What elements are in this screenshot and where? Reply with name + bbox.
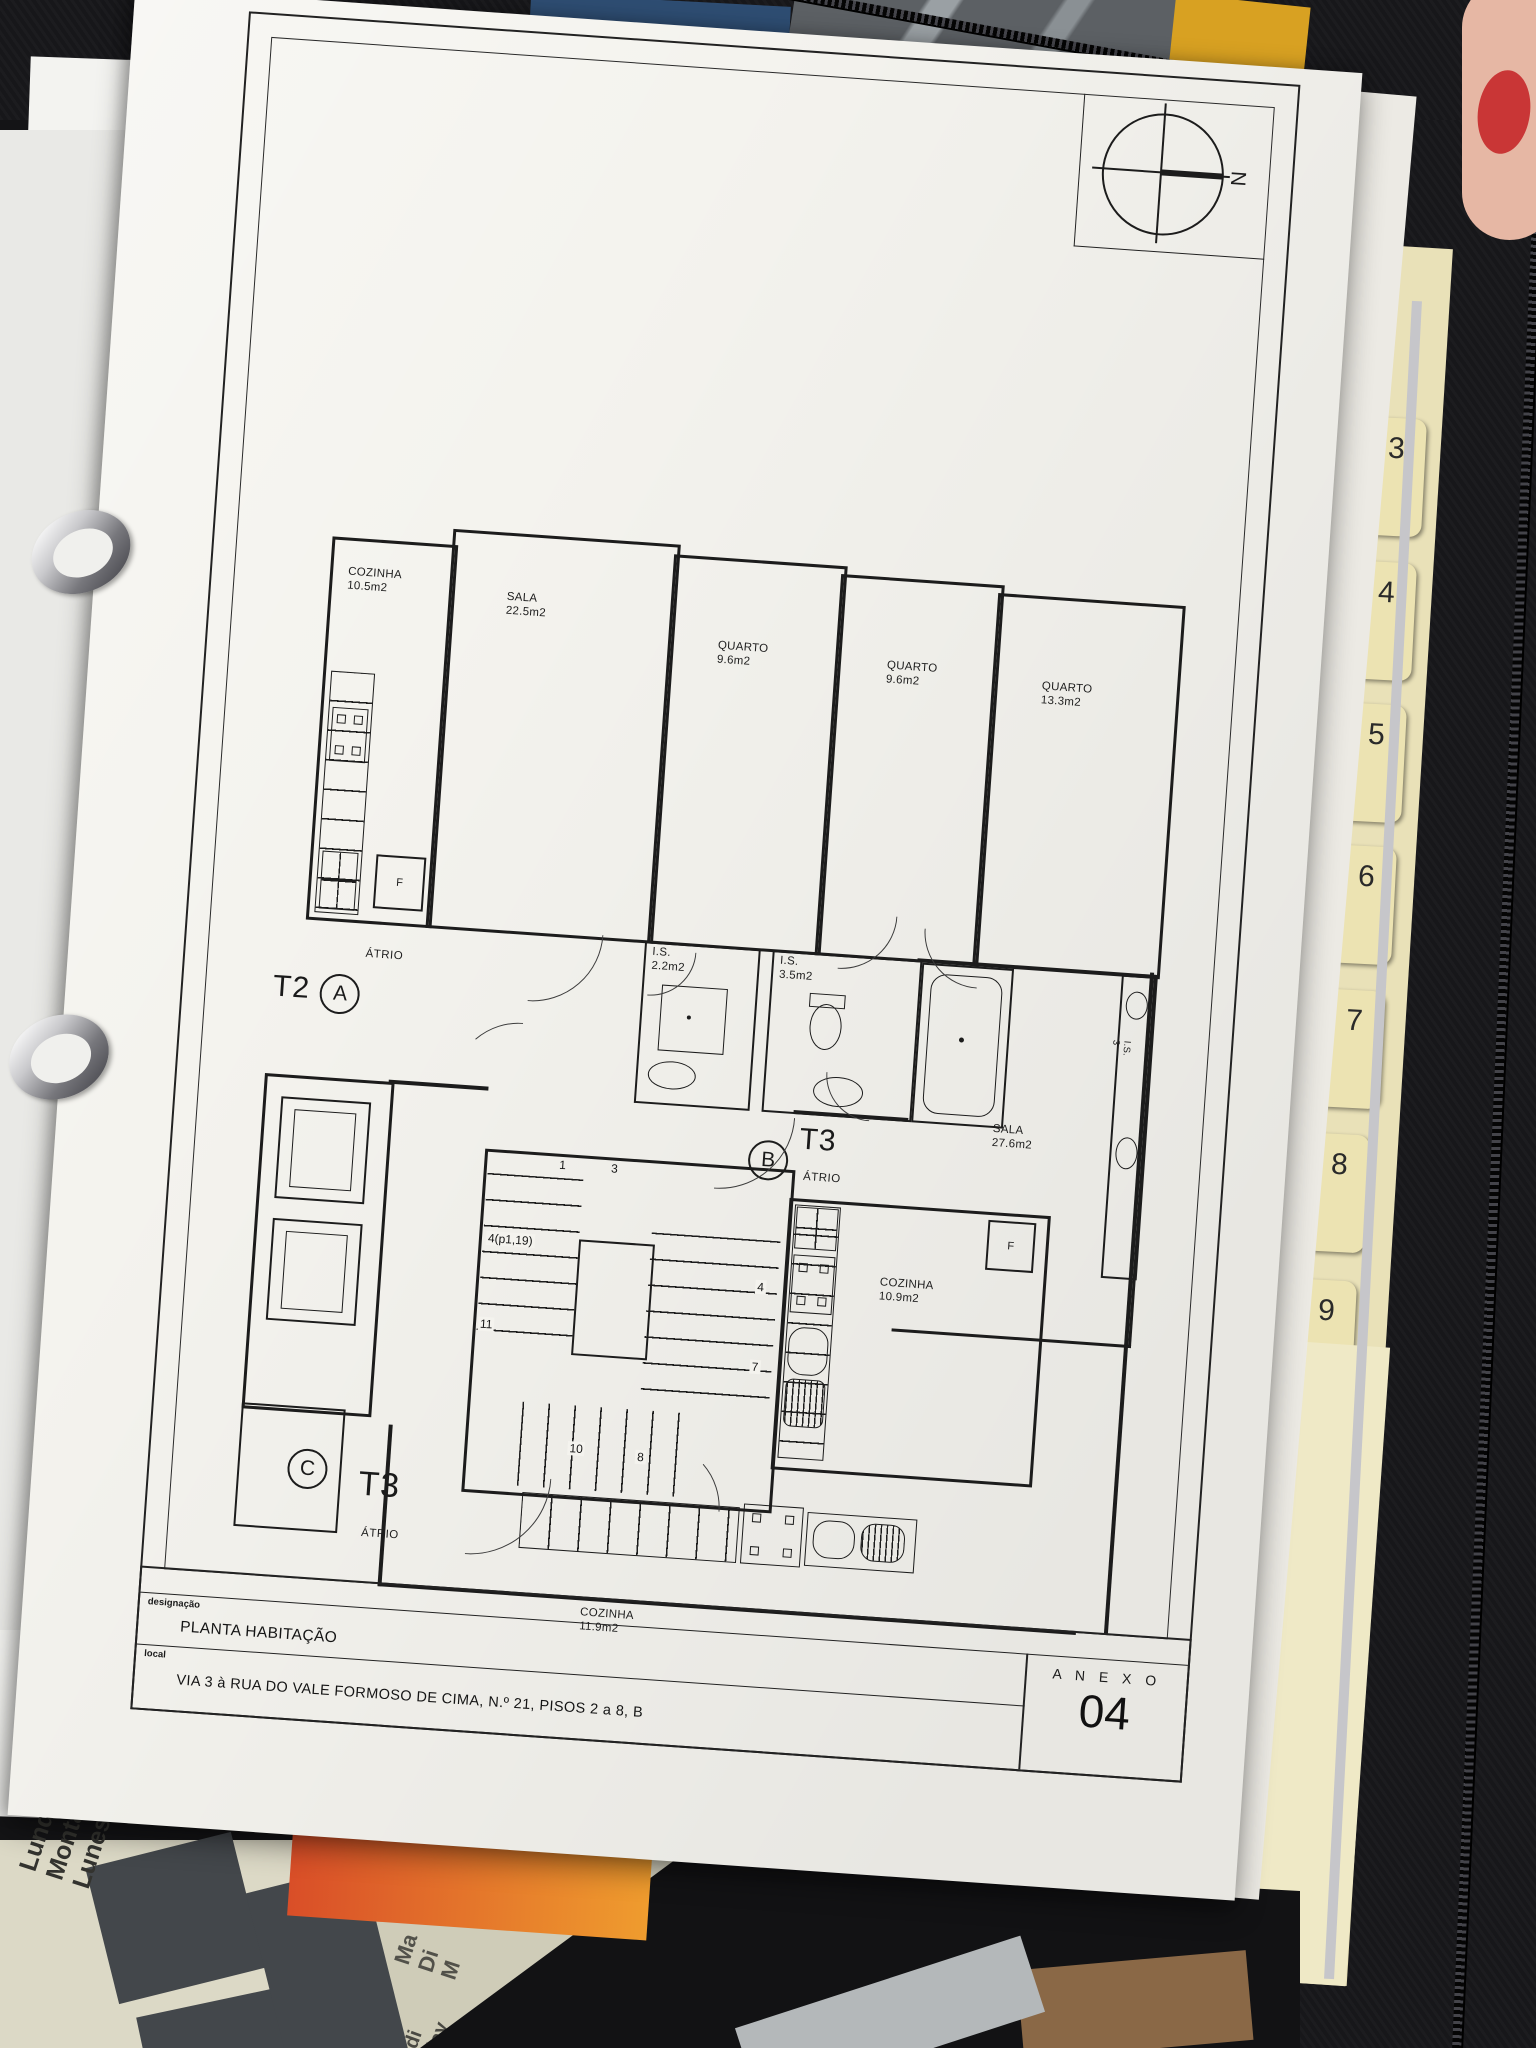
photo-of-floor-plan-in-binder: 3 4 5 6 7 8 9 0 2 Lundi Montag Lunes Ma … [0,0,1536,2048]
designacao-label: designação [147,1596,200,1611]
room-quarto-1 [647,554,848,955]
room-sala-t2 [425,529,680,944]
stair-num-3: 3 [611,1161,619,1175]
sheet-frame: N COZINHA10.5m2 [130,11,1300,1782]
unit-type-c: T3 [357,1465,401,1507]
stair-num-11: 11 [478,1317,495,1332]
room-quarto-3 [972,593,1186,979]
stove-t3b [790,1254,836,1315]
stair-num-8: 8 [635,1450,647,1465]
anexo-box: A N E X O 04 [1018,1654,1188,1781]
designacao-value: PLANTA HABITAÇÃO [179,1618,337,1647]
stair-num-4: 4 [755,1280,767,1295]
unit-label-a: T2 A [271,969,361,1015]
stair-landing [571,1239,655,1360]
label-cozinha-t3b: COZINHA10.9m2 [878,1276,934,1307]
sink-grid-t2 [319,850,359,910]
stair-num-10: 10 [567,1441,585,1456]
stair-num-1: 1 [559,1158,567,1172]
label-quarto-2: QUARTO9.6m2 [885,659,937,690]
label-sala-t3b: SALA27.6m2 [991,1123,1033,1153]
shower-tray [658,985,728,1055]
local-label: local [144,1648,166,1660]
anexo-number: 04 [1023,1680,1186,1745]
label-is-edge: I.S.3 [1109,1040,1133,1057]
label-sala-t2: SALA22.5m2 [505,591,547,621]
floor-plan: COZINHA10.5m2 SALA22.5m2 QUARTO9.6m2 QUA… [227,518,1191,1672]
stove-t2 [329,707,369,763]
fridge-t3b: F [985,1220,1036,1273]
stove-t3c [740,1503,804,1567]
north-indicator: N [1074,94,1275,260]
label-atrio-b: ÁTRIO [803,1171,841,1186]
kitchen-grid-t3b [794,1206,839,1251]
local-value: VIA 3 à RUA DO VALE FORMOSO DE CIMA, N.º… [176,1672,644,1721]
label-quarto-3: QUARTO13.3m2 [1040,680,1092,711]
toilet-tank [809,993,846,1009]
sink-t3b-1 [786,1326,829,1377]
label-is-big: I.S.3.5m2 [779,955,814,985]
label-cozinha-t2: COZINHA10.5m2 [347,566,403,597]
elevator-2 [266,1218,363,1326]
unit-type-b: T3 [798,1123,837,1159]
stairs-right [640,1232,780,1409]
wall-corridor-1 [389,1080,489,1091]
north-letter: N [1225,170,1250,187]
elevator-1 [274,1096,371,1204]
double-sink-t3c [804,1512,917,1574]
stair-num-7: 7 [749,1360,761,1375]
label-quarto-1: QUARTO9.6m2 [716,640,768,671]
fridge-t2: F [373,854,427,911]
label-atrio-a: ÁTRIO [365,948,403,963]
sink-t3b-2 [783,1378,826,1429]
drawing-sheet: N COZINHA10.5m2 [8,0,1363,1901]
